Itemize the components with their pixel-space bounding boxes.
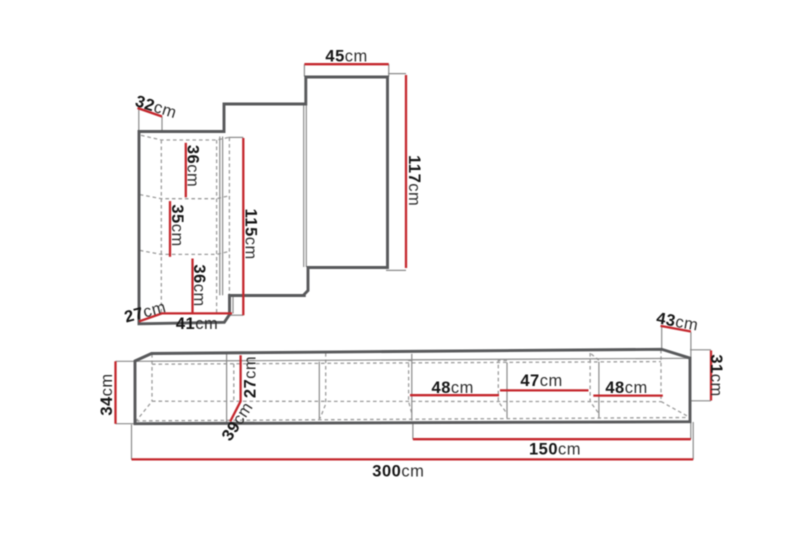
svg-text:34cm: 34cm [98,373,116,415]
svg-text:48cm: 48cm [432,379,474,397]
svg-text:36cm: 36cm [190,264,208,306]
svg-text:36cm: 36cm [184,145,202,187]
svg-text:27cm: 27cm [242,356,260,398]
svg-text:48cm: 48cm [605,379,647,397]
svg-text:31cm: 31cm [707,354,725,396]
svg-text:115cm: 115cm [242,209,260,260]
svg-text:117cm: 117cm [405,155,423,206]
svg-text:300cm: 300cm [372,463,424,481]
svg-text:45cm: 45cm [325,48,367,66]
svg-text:150cm: 150cm [529,441,581,459]
svg-text:35cm: 35cm [168,204,186,246]
svg-text:41cm: 41cm [176,315,218,333]
svg-text:47cm: 47cm [520,372,562,390]
